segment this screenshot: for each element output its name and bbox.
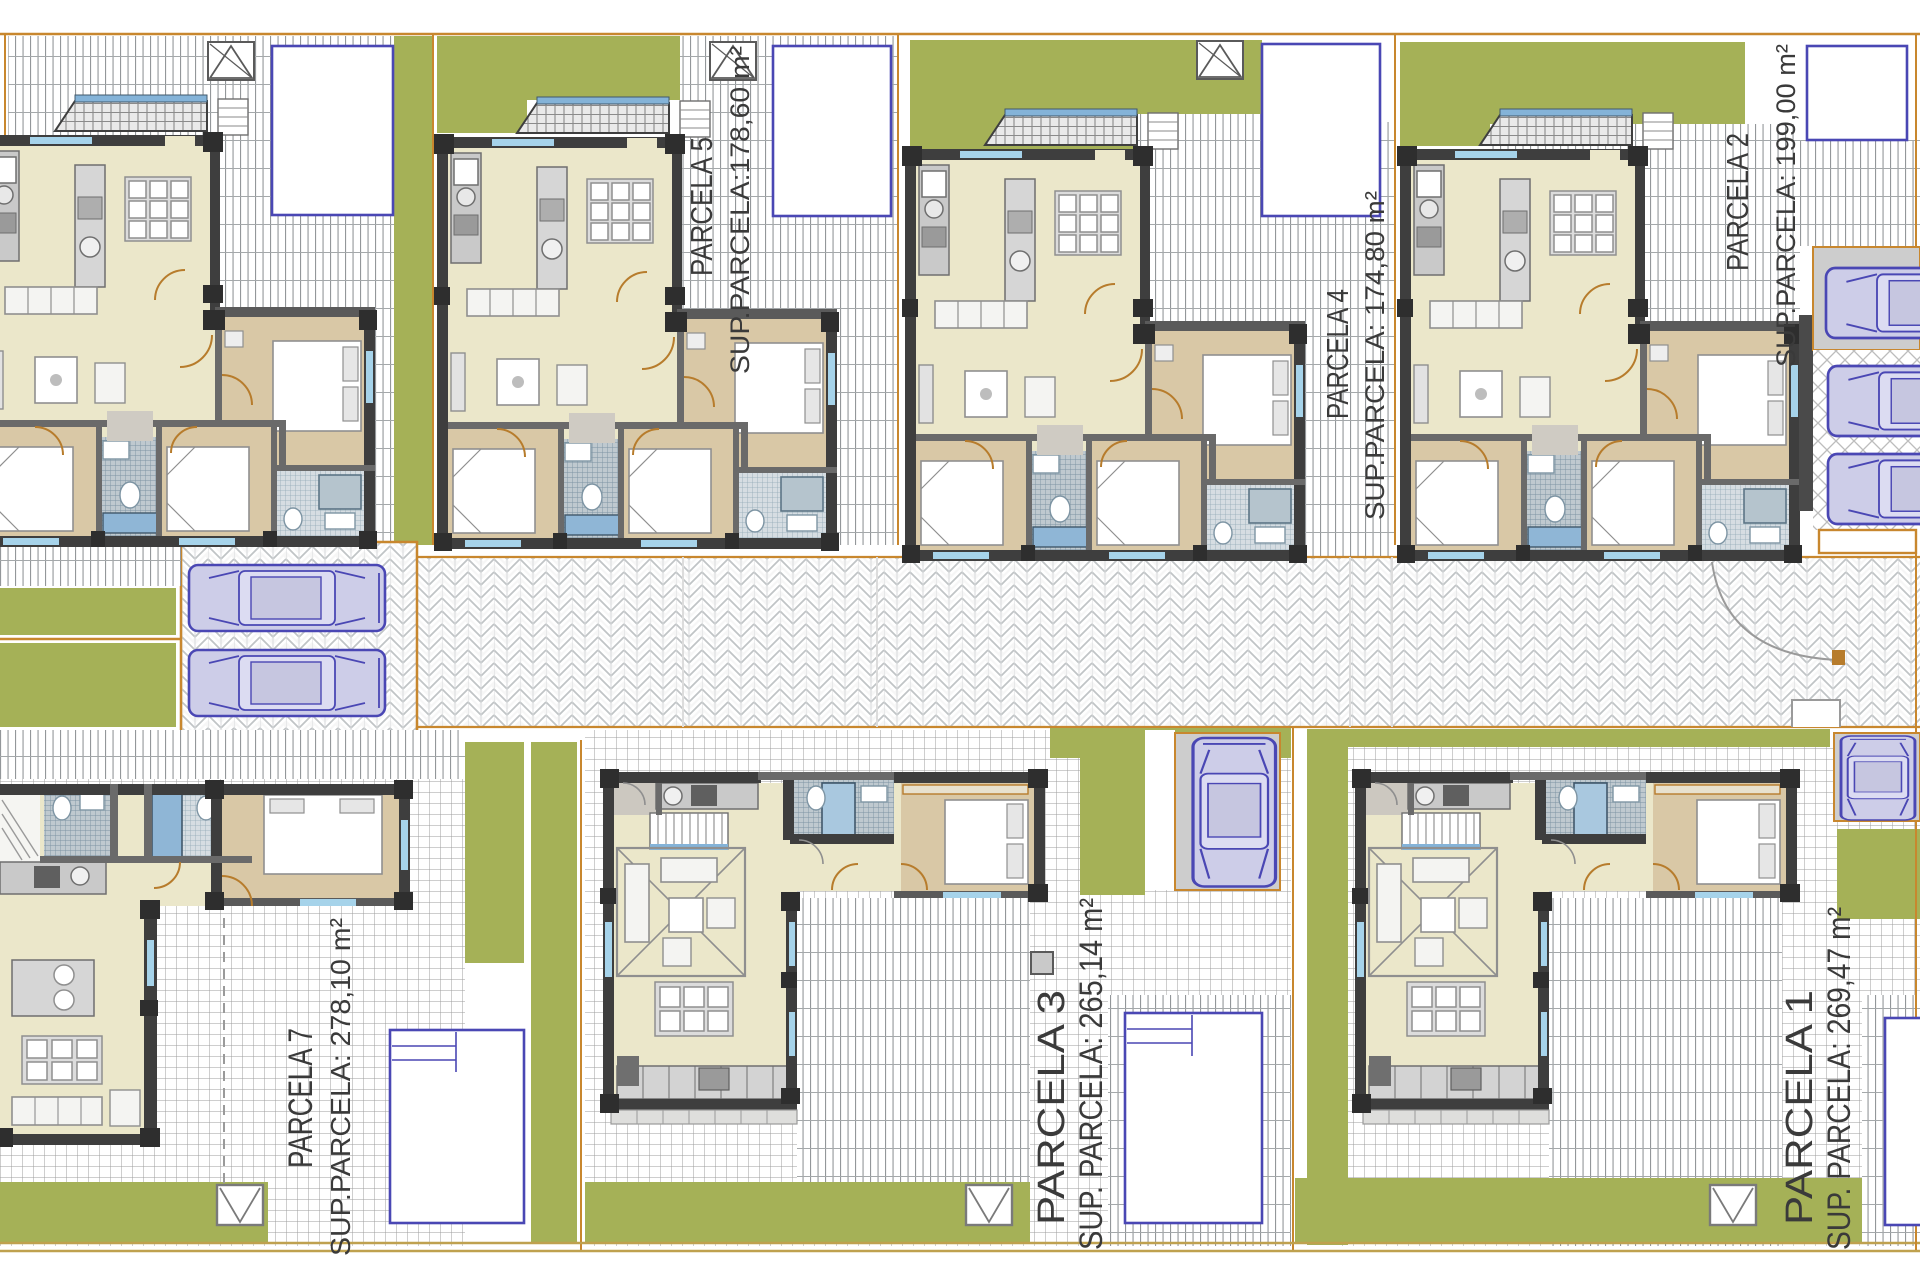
- svg-text:PARCELA 4: PARCELA 4: [1320, 289, 1355, 419]
- svg-text:PARCELA 7: PARCELA 7: [282, 1028, 320, 1168]
- svg-text:SUP.PARCELA: 199,00 m²: SUP.PARCELA: 199,00 m²: [1771, 44, 1801, 367]
- svg-text:SUP.PARCELA: 174,80 m²: SUP.PARCELA: 174,80 m²: [1360, 191, 1390, 520]
- svg-text:PARCELA 2: PARCELA 2: [1720, 133, 1755, 271]
- svg-text:SUP. PARCELA: 265,14 m²: SUP. PARCELA: 265,14 m²: [1073, 898, 1109, 1250]
- svg-text:PARCELA 3: PARCELA 3: [1031, 990, 1073, 1225]
- svg-text:SUP. PARCELA: 269,47 m²: SUP. PARCELA: 269,47 m²: [1821, 907, 1857, 1250]
- svg-text:PARCELA 1: PARCELA 1: [1779, 990, 1821, 1225]
- svg-text:SUP.PARCELA:178,60 m²: SUP.PARCELA:178,60 m²: [725, 46, 755, 374]
- svg-text:PARCELA 5: PARCELA 5: [684, 137, 719, 276]
- svg-text:SUP.PARCELA: 278,10 m²: SUP.PARCELA: 278,10 m²: [325, 918, 356, 1256]
